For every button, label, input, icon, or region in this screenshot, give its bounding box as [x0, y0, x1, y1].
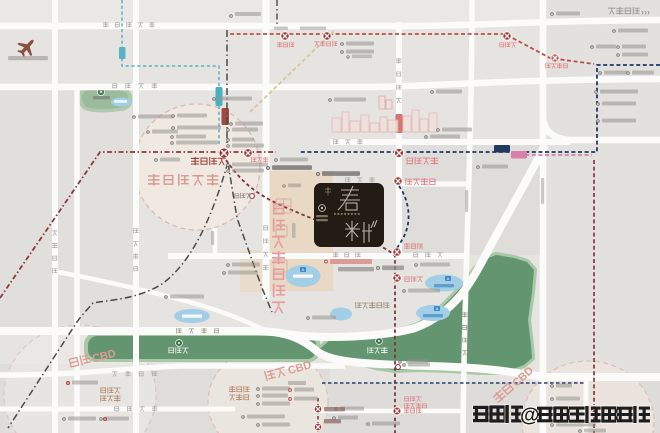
svg-text:A: A: [447, 276, 450, 281]
svg-text:A: A: [302, 267, 305, 272]
svg-text:A: A: [436, 306, 439, 311]
svg-text:›››: ›››: [641, 7, 650, 17]
